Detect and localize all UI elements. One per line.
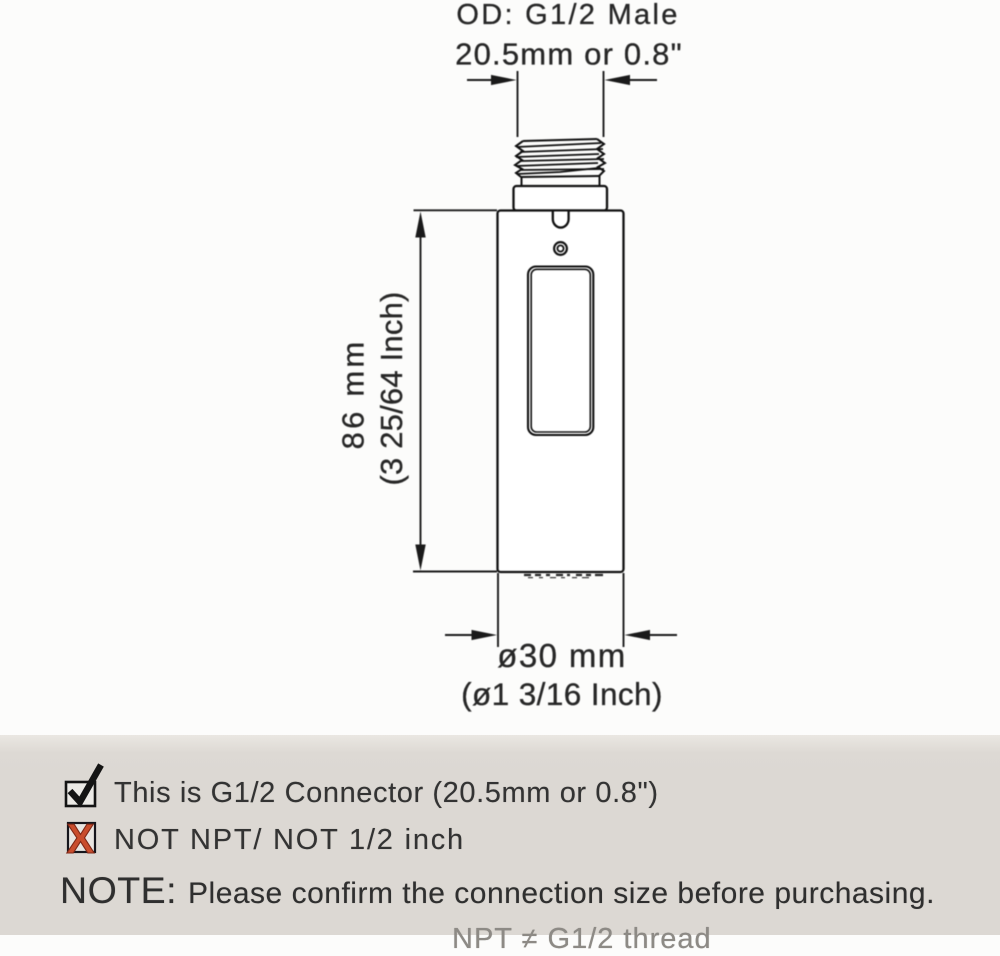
svg-text:OD: G1/2 Male: OD: G1/2 Male bbox=[456, 0, 679, 31]
svg-text:(ø1 3/16 Inch): (ø1 3/16 Inch) bbox=[461, 676, 663, 712]
svg-text:86 mm: 86 mm bbox=[336, 339, 371, 450]
svg-text:(3 25/64 Inch): (3 25/64 Inch) bbox=[374, 291, 409, 485]
svg-text:20.5mm or 0.8": 20.5mm or 0.8" bbox=[455, 37, 683, 72]
svg-text:X: X bbox=[67, 815, 95, 858]
svg-text:ø30 mm: ø30 mm bbox=[497, 637, 626, 674]
